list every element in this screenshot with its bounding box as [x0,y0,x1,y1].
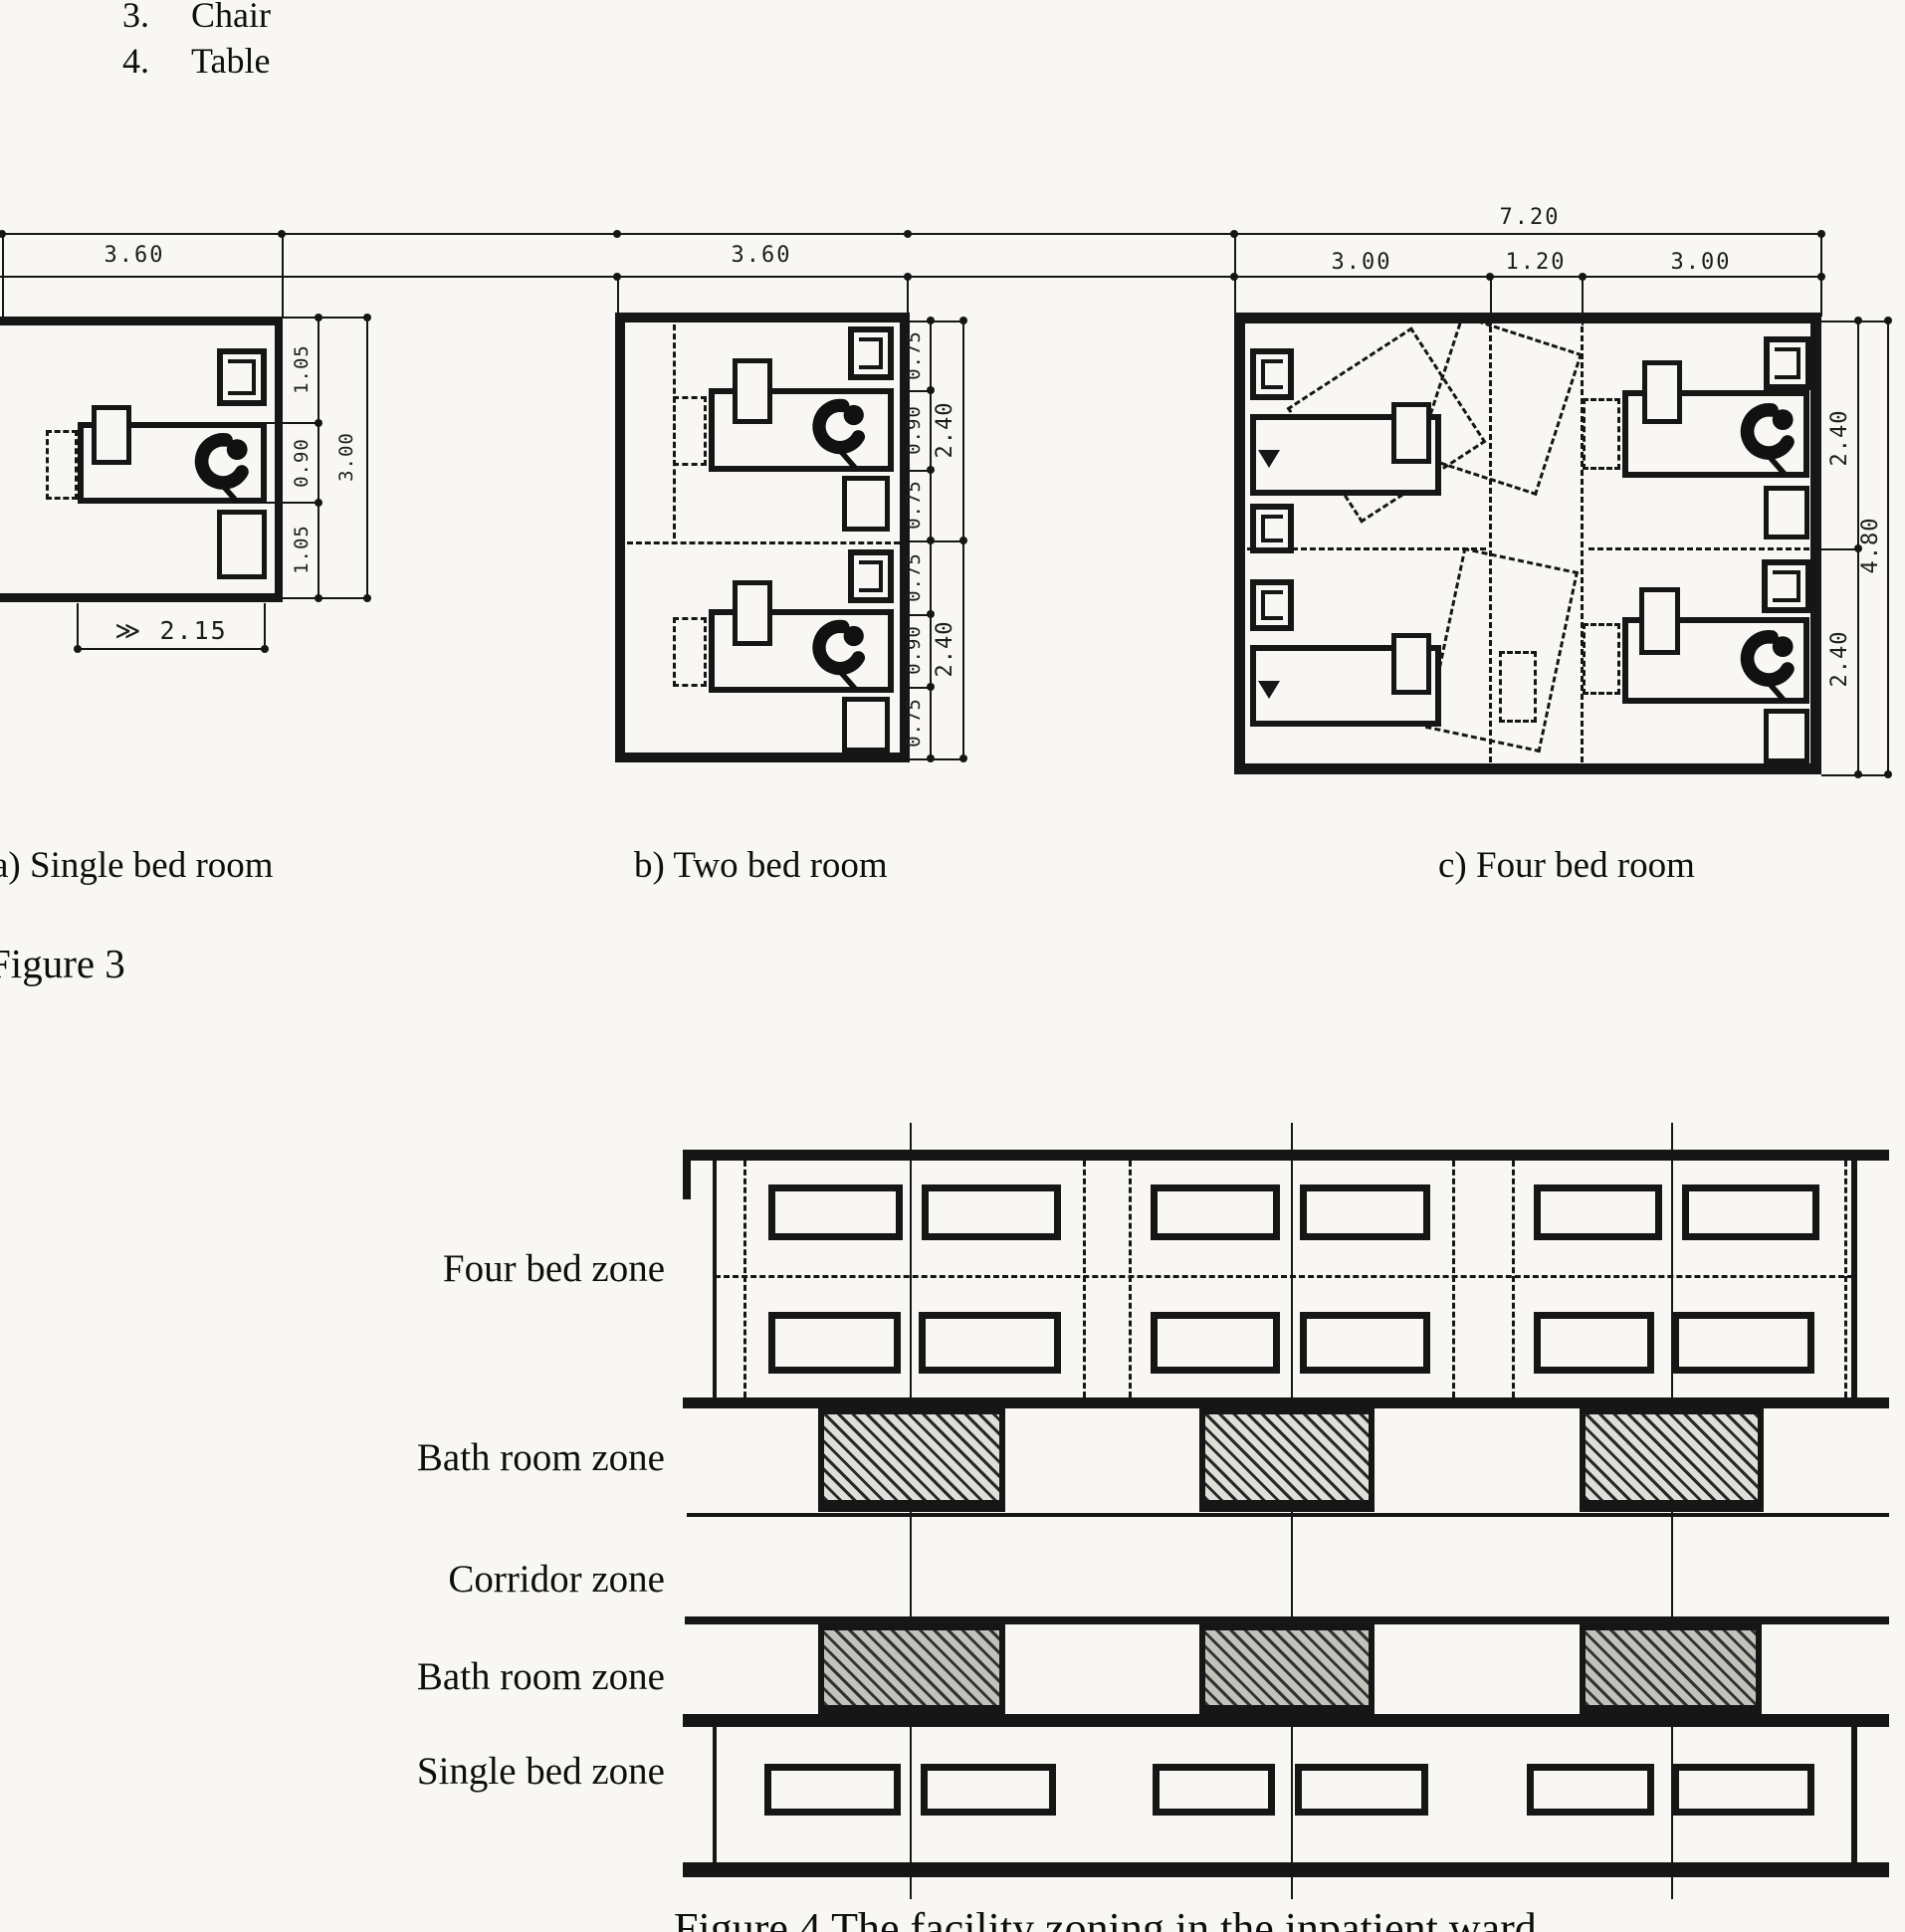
pillow-symbol [1642,360,1682,424]
bed-clearance-dashed [673,396,707,466]
pillow-symbol [1391,402,1431,464]
wall [1234,763,1821,774]
wall [1234,313,1821,323]
dimension-dot [927,466,935,474]
extension-line [617,278,619,316]
chair-seat [1775,347,1800,379]
room-c-half-dim-2: 2.40 [1828,627,1852,691]
zone-band-side-line [713,1727,717,1862]
extension-line [264,603,266,651]
room-a-side-dim-3: 1.05 [290,518,314,581]
dimension-dot [927,317,935,324]
table-symbol [1764,486,1809,539]
zone-band-line [683,1150,1889,1161]
room-b-side-dim-6: 0.75 [902,691,926,754]
dimension-chain-line [317,317,319,599]
room-partition-dashed [1452,1161,1455,1397]
zone-label-single-bed: Single bed zone [328,1749,665,1794]
call-flag-symbol [1258,450,1280,468]
wardrobe-inner [1261,515,1283,542]
dimension-dot [315,314,322,322]
wall [1810,313,1821,774]
dimension-dot [927,386,935,394]
dimension-dot [1854,770,1862,778]
dimension-dot [959,317,967,324]
dimension-dot [1579,273,1587,281]
dimension-dot [959,754,967,762]
dimension-dot [261,645,269,653]
list-item-3-label: Chair [191,0,271,36]
zone-band-line [687,1513,1889,1517]
bath-room-block-hatched [1199,1408,1375,1512]
extension-line [283,597,370,599]
extension-line [910,321,965,322]
extension-line [267,422,320,424]
bath-room-block-hatched [818,1408,1005,1512]
room-c-segment-dim-3: 3.00 [1655,250,1747,275]
patient-figure-icon [794,390,876,468]
zone-band-line [683,1862,1889,1877]
bath-room-block-hatched [1580,1408,1764,1512]
zone-label-four-bed: Four bed zone [328,1246,665,1291]
dimension-dot [904,230,912,238]
room-c-label: c) Four bed room [1438,844,1695,887]
room-c-segment-dim-1: 3.00 [1316,250,1407,275]
zone-label-corridor: Corridor zone [328,1557,665,1602]
four-bed-zone-bed-rect [1300,1184,1430,1240]
room-c-half-dim-1: 2.40 [1828,406,1852,470]
dimension-dot [74,645,82,653]
bed-clearance-dashed [1583,623,1620,695]
bath-room-block-hatched [1580,1624,1762,1715]
extension-line [282,235,284,317]
room-a-total-height-dim: 3.00 [334,425,358,489]
zone-band-side-line [713,1157,717,1401]
bed-area-divider-dashed [1588,547,1809,550]
chair-seat [859,337,883,369]
dimension-dot [315,594,322,602]
extension-line [2,235,4,317]
pillow-symbol [733,358,772,424]
chair-symbol [217,348,267,406]
room-b-half-dim-2: 2.40 [934,617,957,681]
dimension-dot [1817,230,1825,238]
four-bed-zone-bed-rect [922,1184,1061,1240]
zone-band-line [683,1397,1889,1408]
wardrobe-symbol [1250,348,1294,400]
dimension-dot [1230,273,1238,281]
room-partition-dashed [1512,1161,1515,1397]
zone-label-bath-room-2: Bath room zone [328,1654,665,1699]
room-b-side-dim-3: 0.75 [902,473,926,537]
dimension-dot [315,419,322,427]
dimension-dot [1486,273,1494,281]
dimension-dot [1817,273,1825,281]
four-bed-zone-bed-rect [1151,1184,1280,1240]
extension-line [283,317,370,319]
pillow-symbol [1391,633,1431,695]
dimension-dot [1884,317,1892,324]
four-bed-zone-bed-rect [1151,1312,1280,1374]
wall [0,593,283,602]
four-bed-zone-bed-rect [1534,1312,1654,1374]
room-b-half-dim-1: 2.40 [934,398,957,462]
extension-line [77,603,79,651]
four-bed-zone-mid-dashed [715,1275,1853,1278]
dimension-dot [0,230,6,238]
four-bed-zone-bed-rect [1672,1312,1814,1374]
room-partition-dashed [1083,1161,1086,1397]
corridor-boundary-dashed [1581,326,1584,762]
table-symbol [217,510,267,579]
four-bed-zone-bed-rect [1534,1184,1662,1240]
room-a-side-dim-1: 1.05 [290,337,314,401]
room-a-label: a) Single bed room [0,844,274,887]
figure4-caption: Figure 4 The facility zoning in the inpa… [674,1903,1537,1932]
wall [275,317,283,602]
room-partition-dashed [1129,1161,1132,1397]
single-bed-zone-bed-rect [1672,1764,1814,1816]
room-a-width-dim: 3.60 [89,243,180,268]
dimension-dot [927,683,935,691]
wall [1234,313,1245,774]
room-c-segment-dim-2: 1.20 [1490,250,1582,275]
dimension-dot [927,537,935,544]
extension-line [267,502,320,504]
room-b-side-dim-1: 0.75 [902,323,926,387]
patient-figure-icon [794,611,876,689]
pillow-symbol [92,405,131,465]
room-b-width-dim: 3.60 [716,243,807,268]
chair-seat [228,359,256,395]
four-bed-zone-bed-rect [919,1312,1061,1374]
zone-band-line [683,1714,1889,1727]
bed-clearance-dashed [46,430,78,500]
four-bed-zone-bed-rect [768,1184,903,1240]
extension-line [907,278,909,316]
four-bed-zone-bed-rect [768,1312,901,1374]
bed-clearance-dashed [1499,651,1537,723]
single-bed-zone-bed-rect [1295,1764,1428,1816]
dimension-dot [1230,230,1238,238]
single-bed-zone-bed-rect [921,1764,1056,1816]
room-b-side-dim-2: 0.90 [902,398,926,462]
dimension-chain-line-upper [0,233,1823,235]
chair-symbol [848,549,894,603]
dimension-chain-line-lower [0,276,1823,278]
room-a-clearance-dim: ≫ 2.15 [111,616,231,645]
dimension-dot [927,754,935,762]
chair-symbol [848,326,894,380]
four-bed-zone-bed-rect [1300,1312,1430,1374]
pillow-symbol [733,580,772,646]
bed-area-divider-dashed [627,541,900,544]
dimension-dot [613,273,621,281]
figure3-caption: Figure 3 [0,940,125,987]
patient-figure-icon [1724,394,1803,474]
room-c-total-width-dim: 7.20 [1484,205,1576,230]
room-b-side-dim-4: 0.75 [902,545,926,609]
wall [615,752,910,762]
dimension-chain-line [366,317,368,599]
dimension-line [78,648,267,650]
room-partition-dashed [743,1161,746,1397]
room-b-side-dim-5: 0.90 [902,618,926,682]
wardrobe-symbol [1250,504,1294,553]
zone-band-side-line [1851,1727,1857,1862]
patient-figure-icon [1724,621,1803,701]
dimension-dot [363,314,371,322]
single-bed-zone-bed-rect [764,1764,901,1816]
room-partition-dashed [1844,1161,1847,1397]
chair-seat [1773,570,1800,602]
patient-figure-icon [177,424,259,504]
wall [615,313,910,322]
dimension-dot [315,499,322,507]
extension-line [910,540,965,542]
single-bed-zone-bed-rect [1527,1764,1654,1816]
dimension-dot [278,230,286,238]
table-symbol [1764,709,1809,763]
table-symbol [842,476,890,532]
room-b-label: b) Two bed room [634,844,888,887]
bed-clearance-dashed [673,617,707,687]
chair-seat [859,560,883,592]
call-flag-symbol [1258,681,1280,699]
zone-band-side-line [1851,1157,1857,1401]
dimension-chain-line [1887,321,1889,774]
dimension-dot [1854,544,1862,552]
wall [615,313,625,762]
list-item-4-number: 4. [122,40,149,82]
list-item-3-number: 3. [122,0,149,36]
dimension-dot [363,594,371,602]
single-bed-zone-bed-rect [1153,1764,1275,1816]
zone-label-bath-room-1: Bath room zone [328,1435,665,1480]
dimension-dot [927,610,935,618]
chair-symbol [1762,559,1811,613]
pillow-symbol [1639,587,1680,655]
zone-band-end-tick [683,1150,691,1199]
dimension-dot [959,537,967,544]
bath-room-block-hatched [1199,1624,1375,1715]
wardrobe-symbol [1250,579,1294,631]
room-a-side-dim-2: 0.90 [290,431,314,495]
bath-room-block-hatched [818,1624,1005,1715]
list-item-4-label: Table [191,40,270,82]
room-c-total-height-dim: 4.80 [1859,514,1883,577]
dimension-dot [904,273,912,281]
wardrobe-inner [1261,590,1283,620]
bed-clearance-dashed [1583,398,1620,470]
dimension-dot [1884,770,1892,778]
chair-symbol [1764,336,1811,390]
extension-line [910,758,965,760]
wardrobe-inner [1261,359,1283,389]
table-symbol [842,697,890,752]
dimension-dot [1854,317,1862,324]
zone-band-line [685,1616,1889,1624]
four-bed-zone-bed-rect [1682,1184,1819,1240]
scanned-paper-page: 3. Chair 4. Table 3.60 3.60 7.20 3.00 1.… [0,0,1905,1932]
wall [0,317,283,325]
dimension-dot [613,230,621,238]
